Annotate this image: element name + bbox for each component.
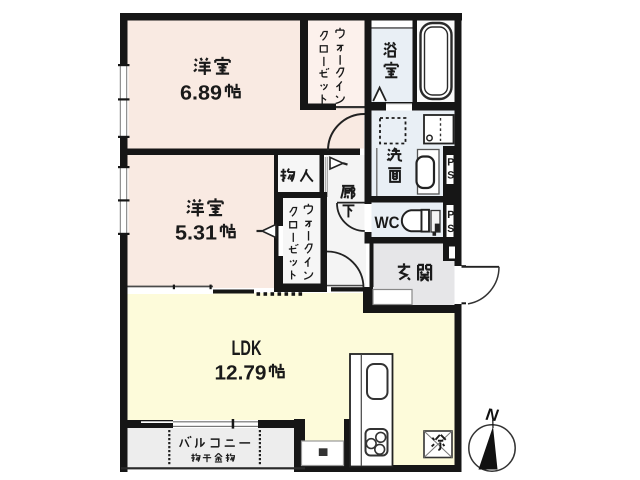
svg-text:WC: WC (375, 214, 400, 232)
svg-text:12.79: 12.79 (215, 362, 267, 385)
svg-text:6.89: 6.89 (180, 82, 222, 105)
svg-text:S: S (447, 170, 454, 182)
svg-text:S: S (447, 223, 454, 235)
svg-text:P: P (447, 209, 454, 221)
svg-text:P: P (447, 157, 454, 169)
svg-text:5.31: 5.31 (175, 222, 217, 245)
svg-text:LDK: LDK (232, 337, 262, 360)
